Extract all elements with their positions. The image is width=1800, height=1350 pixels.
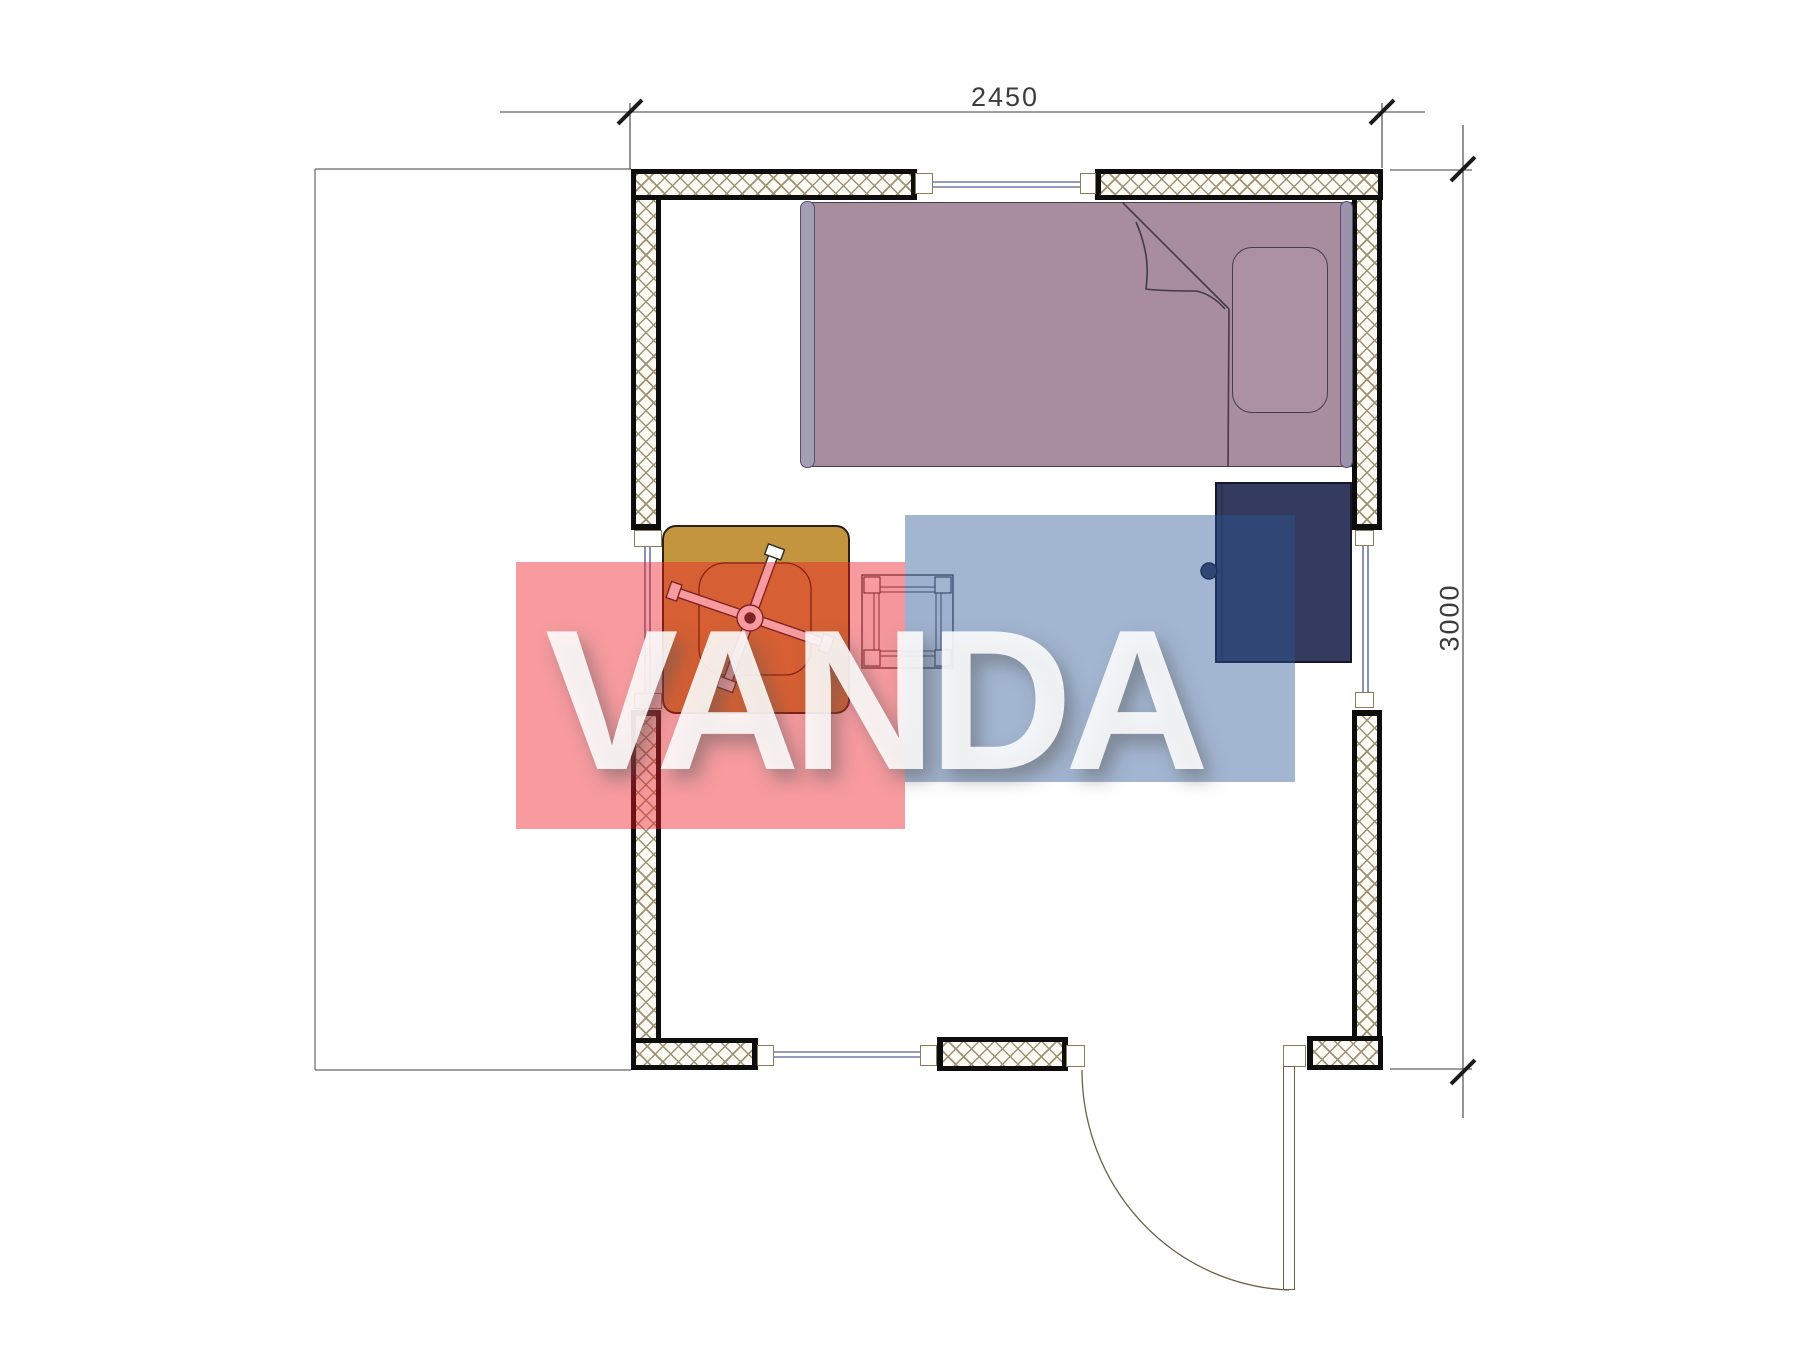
door-jamb-left — [1066, 1045, 1085, 1067]
window-frame-top-left — [915, 173, 933, 194]
window-frame-right-upper — [1355, 530, 1374, 546]
watermark-text: VANDA — [545, 601, 1201, 801]
dim-label-height: 3000 — [1435, 558, 1466, 678]
folded-blanket — [1123, 203, 1229, 467]
door-jamb-right — [1283, 1045, 1306, 1067]
window-frame-top-right — [1080, 173, 1096, 194]
window-frame-left-upper — [634, 530, 662, 547]
door-swing-arc — [1082, 1070, 1289, 1290]
window-frame-bottom-left — [757, 1045, 774, 1066]
window-frame-bottom-right — [920, 1045, 937, 1066]
dim-label-width: 2450 — [945, 82, 1065, 113]
floor-plan-canvas: 2450 3000 VANDA — [0, 0, 1800, 1350]
window-frame-right-lower — [1355, 692, 1374, 708]
door-leaf — [1283, 1066, 1295, 1290]
